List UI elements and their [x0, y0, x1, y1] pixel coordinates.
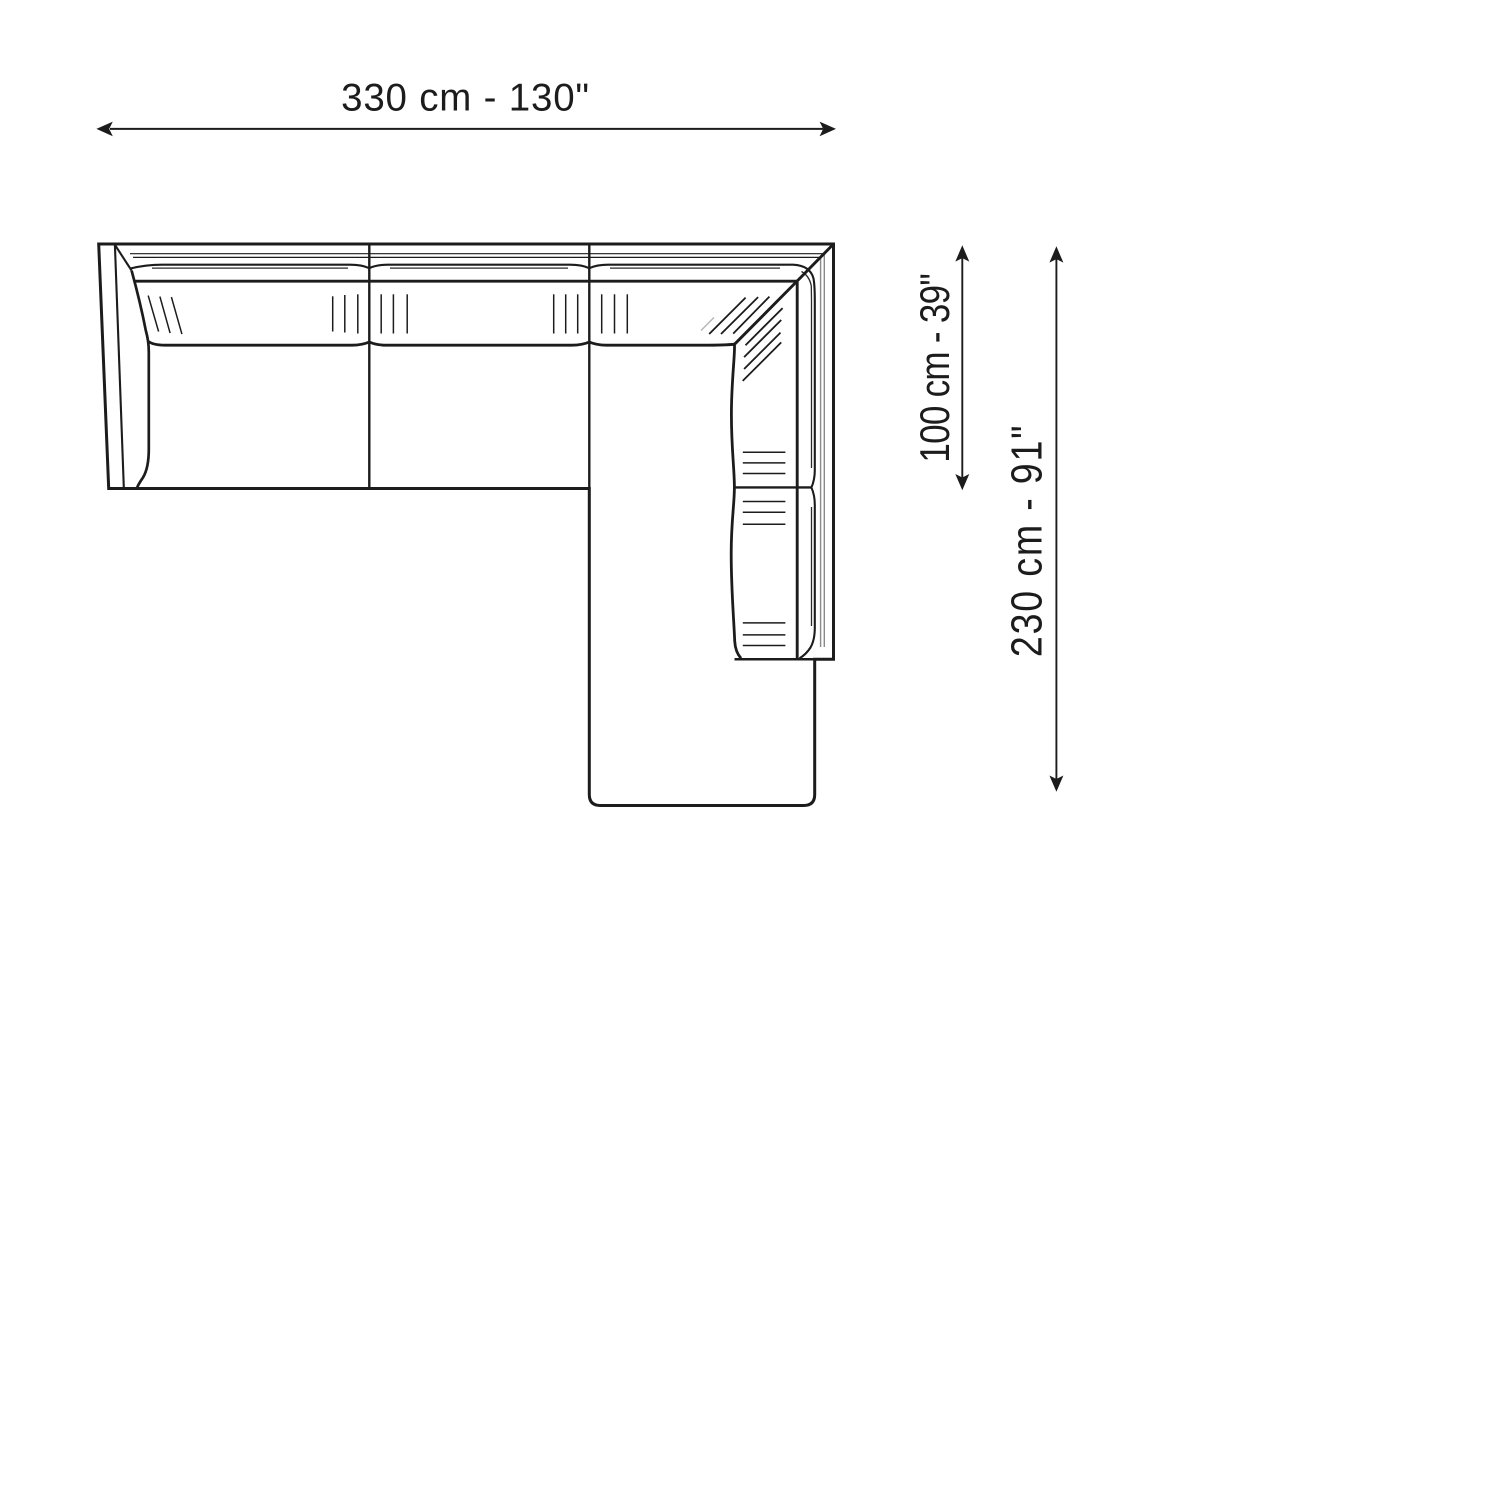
- svg-text:230 cm - 91": 230 cm - 91": [1002, 424, 1051, 657]
- svg-text:330 cm - 130": 330 cm - 130": [341, 77, 590, 120]
- svg-text:100 cm - 39": 100 cm - 39": [912, 274, 959, 463]
